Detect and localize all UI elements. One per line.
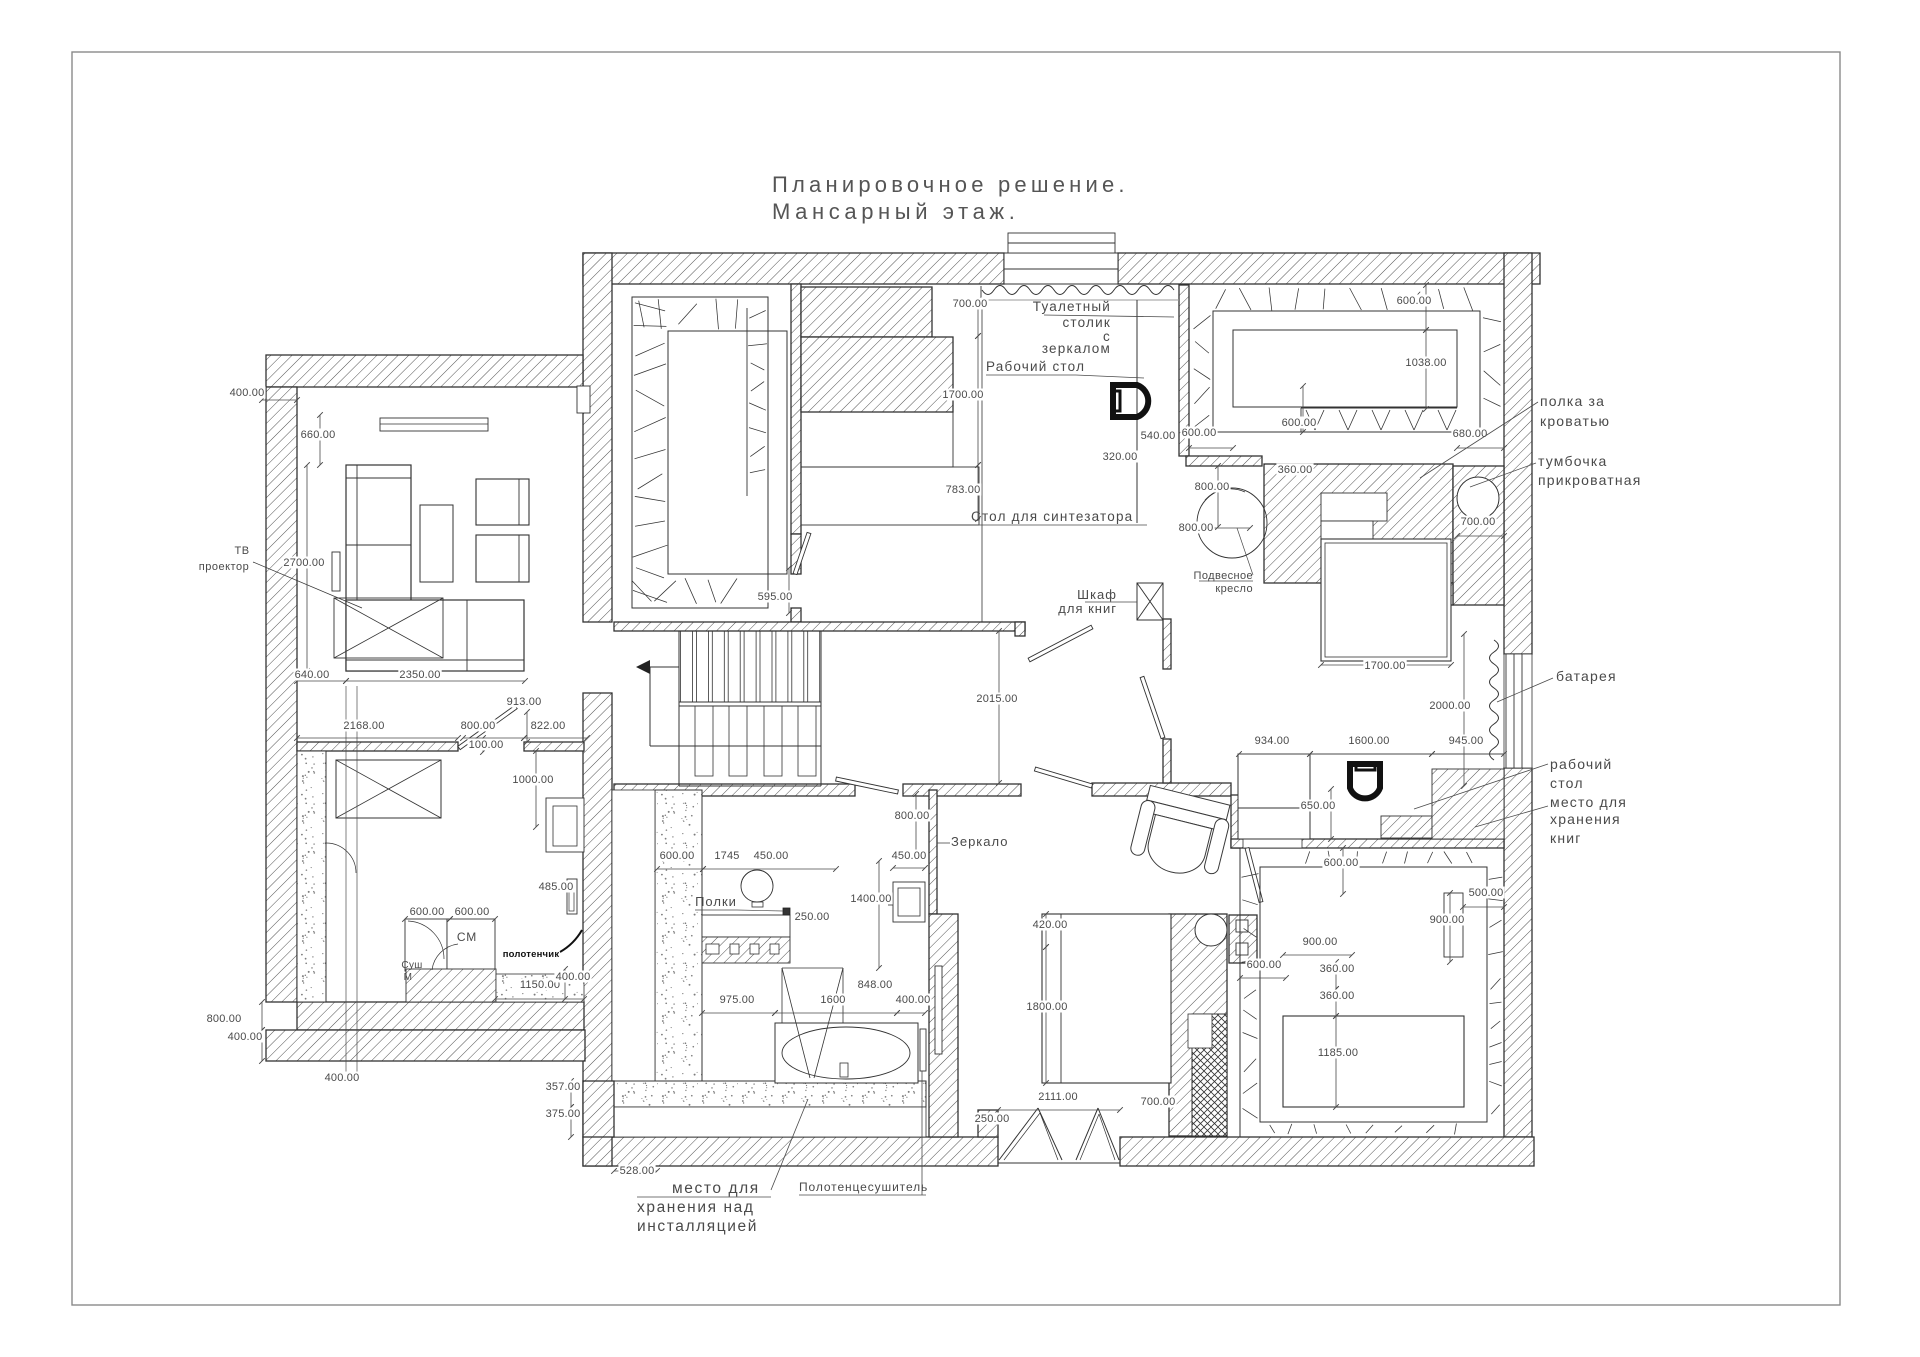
svg-text:Планировочное решение.: Планировочное решение. xyxy=(772,172,1129,197)
svg-text:800.00: 800.00 xyxy=(207,1013,242,1025)
svg-text:600.00: 600.00 xyxy=(455,906,490,918)
svg-text:900.00: 900.00 xyxy=(1430,914,1465,926)
svg-text:хранения: хранения xyxy=(1550,811,1621,827)
svg-text:зеркалом: зеркалом xyxy=(1042,341,1111,356)
svg-text:783.00: 783.00 xyxy=(946,484,981,496)
svg-text:450.00: 450.00 xyxy=(892,850,927,862)
svg-text:1185.00: 1185.00 xyxy=(1318,1047,1358,1059)
svg-text:595.00: 595.00 xyxy=(758,591,793,603)
svg-text:ТВ: ТВ xyxy=(234,545,249,557)
svg-text:М: М xyxy=(404,972,413,983)
svg-text:книг: книг xyxy=(1550,830,1582,846)
svg-text:Мансарный этаж.: Мансарный этаж. xyxy=(772,199,1019,224)
svg-text:600.00: 600.00 xyxy=(660,850,695,862)
svg-text:640.00: 640.00 xyxy=(295,669,330,681)
svg-text:батарея: батарея xyxy=(1556,668,1617,684)
svg-text:1800.00: 1800.00 xyxy=(1026,1001,1067,1013)
svg-text:600.00: 600.00 xyxy=(1324,857,1359,869)
svg-text:945.00: 945.00 xyxy=(1449,735,1484,747)
svg-text:822.00: 822.00 xyxy=(531,720,566,732)
svg-text:Туалетный: Туалетный xyxy=(1033,299,1111,314)
svg-text:400.00: 400.00 xyxy=(896,994,931,1006)
svg-text:1700.00: 1700.00 xyxy=(1364,660,1405,672)
svg-text:800.00: 800.00 xyxy=(1179,522,1214,534)
svg-text:360.00: 360.00 xyxy=(1320,990,1355,1002)
svg-text:2350.00: 2350.00 xyxy=(399,669,440,681)
svg-text:660.00: 660.00 xyxy=(301,429,336,441)
svg-text:2168.00: 2168.00 xyxy=(343,720,384,732)
svg-text:Шкаф: Шкаф xyxy=(1077,587,1117,602)
svg-text:проектор: проектор xyxy=(199,561,249,573)
svg-text:место для: место для xyxy=(672,1180,760,1197)
svg-text:СМ: СМ xyxy=(457,930,477,944)
svg-text:Суш: Суш xyxy=(401,960,422,971)
svg-text:полотенчик: полотенчик xyxy=(503,949,560,960)
svg-text:700.00: 700.00 xyxy=(1461,516,1496,528)
svg-text:360.00: 360.00 xyxy=(1320,963,1355,975)
svg-text:инсталляцией: инсталляцией xyxy=(637,1218,758,1235)
svg-text:Подвесное: Подвесное xyxy=(1194,570,1253,582)
svg-text:900.00: 900.00 xyxy=(1303,936,1338,948)
svg-text:2700.00: 2700.00 xyxy=(283,557,324,569)
svg-text:1745: 1745 xyxy=(714,850,739,862)
svg-text:600.00: 600.00 xyxy=(1282,417,1317,429)
svg-text:913.00: 913.00 xyxy=(507,696,542,708)
svg-text:1600.00: 1600.00 xyxy=(1348,735,1389,747)
svg-text:2000.00: 2000.00 xyxy=(1429,700,1470,712)
svg-text:400.00: 400.00 xyxy=(556,971,591,983)
svg-text:450.00: 450.00 xyxy=(754,850,789,862)
svg-text:800.00: 800.00 xyxy=(895,810,930,822)
svg-text:360.00: 360.00 xyxy=(1278,464,1313,476)
svg-text:2015.00: 2015.00 xyxy=(976,693,1017,705)
svg-text:320.00: 320.00 xyxy=(1103,451,1138,463)
svg-text:250.00: 250.00 xyxy=(975,1113,1010,1125)
svg-text:Стол для синтезатора: Стол для синтезатора xyxy=(971,509,1133,524)
svg-text:кресло: кресло xyxy=(1215,583,1253,595)
svg-text:1700.00: 1700.00 xyxy=(942,389,983,401)
svg-text:100.00: 100.00 xyxy=(469,739,504,751)
svg-text:стол: стол xyxy=(1550,775,1584,791)
svg-text:для книг: для книг xyxy=(1058,601,1117,616)
svg-text:800.00: 800.00 xyxy=(1195,481,1230,493)
svg-text:528.00: 528.00 xyxy=(620,1165,655,1177)
svg-text:400.00: 400.00 xyxy=(325,1072,360,1084)
svg-text:700.00: 700.00 xyxy=(1141,1096,1176,1108)
svg-text:800.00: 800.00 xyxy=(461,720,496,732)
svg-text:тумбочка: тумбочка xyxy=(1538,453,1608,469)
svg-text:540.00: 540.00 xyxy=(1141,430,1176,442)
svg-text:место для: место для xyxy=(1550,794,1627,810)
svg-text:1000.00: 1000.00 xyxy=(512,774,553,786)
svg-text:Полки: Полки xyxy=(695,894,737,909)
svg-text:Рабочий стол: Рабочий стол xyxy=(986,359,1085,374)
svg-text:2111.00: 2111.00 xyxy=(1038,1091,1078,1103)
svg-text:848.00: 848.00 xyxy=(858,979,893,991)
svg-text:375.00: 375.00 xyxy=(546,1108,581,1120)
svg-text:600.00: 600.00 xyxy=(1397,295,1432,307)
svg-text:600.00: 600.00 xyxy=(410,906,445,918)
svg-text:400.00: 400.00 xyxy=(230,387,265,399)
svg-text:975.00: 975.00 xyxy=(720,994,755,1006)
svg-text:500.00: 500.00 xyxy=(1469,887,1504,899)
svg-text:столик: столик xyxy=(1062,315,1111,330)
svg-text:357.00: 357.00 xyxy=(546,1081,581,1093)
svg-text:485.00: 485.00 xyxy=(539,881,574,893)
svg-text:420.00: 420.00 xyxy=(1033,919,1068,931)
svg-text:400.00: 400.00 xyxy=(228,1031,263,1043)
svg-text:Полотенцесушитель: Полотенцесушитель xyxy=(799,1180,928,1194)
svg-text:934.00: 934.00 xyxy=(1255,735,1290,747)
svg-text:хранения над: хранения над xyxy=(637,1199,755,1216)
svg-text:1038.00: 1038.00 xyxy=(1405,357,1446,369)
svg-text:кроватью: кроватью xyxy=(1540,413,1610,429)
svg-text:1150.00: 1150.00 xyxy=(520,979,560,991)
svg-text:600.00: 600.00 xyxy=(1182,427,1217,439)
svg-text:прикроватная: прикроватная xyxy=(1538,472,1642,488)
svg-text:рабочий: рабочий xyxy=(1550,756,1612,772)
svg-text:1600: 1600 xyxy=(820,994,845,1006)
svg-text:Зеркало: Зеркало xyxy=(951,834,1008,849)
svg-text:650.00: 650.00 xyxy=(1301,800,1336,812)
svg-text:250.00: 250.00 xyxy=(795,911,830,923)
svg-text:700.00: 700.00 xyxy=(953,298,988,310)
svg-text:600.00: 600.00 xyxy=(1247,959,1282,971)
svg-text:полка за: полка за xyxy=(1540,393,1605,409)
svg-text:1400.00: 1400.00 xyxy=(850,893,891,905)
